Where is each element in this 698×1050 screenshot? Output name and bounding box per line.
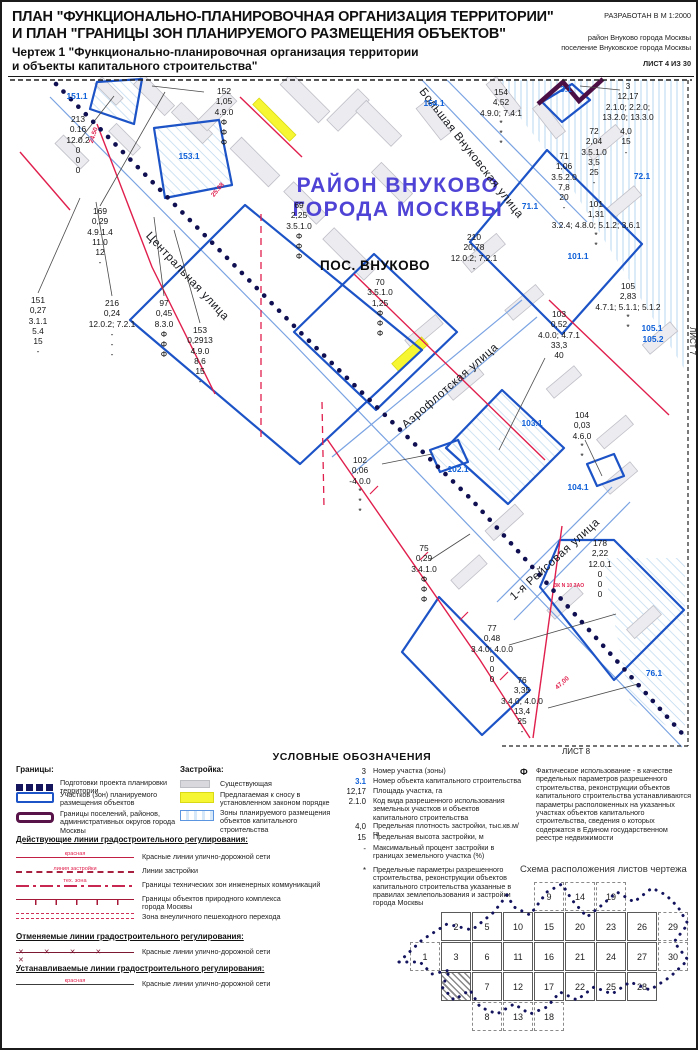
- param-text: Номер участка (зоны): [373, 767, 525, 776]
- legend-item-label: Границы технических зон инженерных комму…: [142, 881, 332, 889]
- fact-use-symbol: Ф: [520, 767, 532, 843]
- parcel-annotation: 151 0,27 3.1.1 5.4 15 -: [29, 295, 48, 357]
- legend-title: УСЛОВНЫЕ ОБОЗНАЧЕНИЯ: [202, 751, 502, 763]
- parcel-annotation: 169 0,29 4.9.1.4 11.0 12 -: [87, 206, 113, 268]
- scheme-sheet-cell: 3: [441, 942, 471, 971]
- fact-use-note: Ф Фактическое использование - в качестве…: [520, 767, 692, 843]
- scheme-sheet-cell: 25: [596, 972, 626, 1001]
- param-text: Номер объекта капитального строительства: [373, 777, 525, 786]
- param-symbol: 2.1.0: [340, 797, 366, 822]
- scheme-sheet-cell: 10: [503, 912, 533, 941]
- scheme-current-sheet-cell: [441, 972, 471, 1001]
- zone-label: 76.1: [646, 668, 662, 678]
- zone-label: 153.1: [179, 151, 200, 161]
- legend-item-label: Существующая: [220, 780, 330, 788]
- param-symbol: 3.1: [340, 777, 366, 786]
- param-row: 3Номер участка (зоны): [340, 767, 525, 776]
- legend-item-label: Границы объектов природного комплекса го…: [142, 895, 292, 912]
- parcel-annotation: 104 0,03 4.6.0 * *: [573, 410, 592, 461]
- param-row: *Предельные параметры разрешенного строи…: [340, 866, 525, 907]
- blue-hatch-swatch: [180, 810, 214, 821]
- parcel-annotation: 153 0,2913 4.9.0 8,6 15 -: [187, 325, 213, 387]
- parcel-annotation: 102 0,06 -4.0.0 * * *: [349, 455, 370, 517]
- parcel-annotation: 75 0,29 3.4.1.0 Ф Ф Ф: [411, 543, 437, 605]
- legend-item-label: Зоны планируемого размещения объектов ка…: [220, 809, 332, 834]
- parcel-annotation: 72 2,04 3.5.1.0 3,5 25 -: [581, 126, 607, 188]
- parcel-annotation: 70 3.5.1.0 1,25 Ф Ф Ф: [367, 277, 393, 339]
- scheme-sheet-cell: 2: [441, 912, 471, 941]
- parcel-annotation: 152 1,05 4.9.0 Ф Ф Ф: [215, 86, 234, 148]
- scheme-sheet-cell: 7: [472, 972, 502, 1001]
- scheme-sheet-cell: 5: [472, 912, 502, 941]
- edge-label-sheet7: ЛИСТ 7: [688, 327, 697, 355]
- scheme-sheet-cell: 12: [503, 972, 533, 1001]
- parcel-annotation: 69 2,25 3.5.1.0 Ф Ф Ф: [286, 200, 312, 262]
- purple-rect-swatch: [16, 812, 54, 823]
- zone-label: 3.1: [560, 84, 572, 94]
- scheme-sheet-cell: 8: [472, 1002, 502, 1031]
- param-row: 2.1.0Код вида разрешенного использования…: [340, 797, 525, 822]
- scheme-sheet-cell: 21: [565, 942, 595, 971]
- parcel-annotation: 105 2,83 4.7.1; 5.1.1; 5.1.2 * *: [595, 281, 660, 332]
- scheme-sheet-cell: 26: [627, 912, 657, 941]
- parcel-annotation: 210 20,78 12.0.2; 7.2.1 -: [451, 232, 498, 273]
- param-text: Код вида разрешенного использования земе…: [373, 797, 525, 822]
- zone-label: 103.1: [522, 418, 543, 428]
- zone-label: 71.1: [522, 201, 538, 211]
- zone-label: 72.1: [634, 171, 650, 181]
- parcel-annotation: 3 12,17 2.1.0; 2.2.0; 13.2.0; 13.3.0: [602, 81, 653, 122]
- param-symbol: -: [340, 844, 366, 861]
- sheet-number-note: ЛИСТ 4 ИЗ 30: [643, 59, 691, 68]
- scheme-sheet-cell: 9: [534, 882, 564, 911]
- param-text: Максимальный процент застройки в граница…: [373, 844, 525, 861]
- scheme-sheet-cell: 28: [627, 972, 657, 1001]
- param-symbol: 15: [340, 833, 366, 842]
- scheme-sheet-cell: 6: [472, 942, 502, 971]
- legend-item-label: Красные линии улично-дорожной сети: [142, 853, 332, 861]
- scale-note: РАЗРАБОТАН В М 1:2000: [604, 11, 691, 20]
- swatch-tag: тех. зона: [63, 878, 86, 884]
- legend-item-label: Зона внеуличного пешеходного перехода: [142, 913, 332, 921]
- plan-title-line2: И ПЛАН "ГРАНИЦЫ ЗОН ПЛАНИРУЕМОГО РАЗМЕЩЕ…: [12, 26, 506, 43]
- parcel-annotation: 76 3,35 3.4.0; 4.0.0 13,4 25 -: [501, 675, 543, 737]
- settlement-label: ПОС. ВНУКОВО: [320, 258, 430, 273]
- legend-item-label: Предлагаемая к сносу в установленном зак…: [220, 791, 332, 808]
- scheme-sheet-cell: 24: [596, 942, 626, 971]
- swatch-tag: линия застройки: [53, 866, 96, 872]
- swatch-tag: красная: [65, 978, 86, 984]
- fact-use-text: Фактическое использование - в качестве п…: [536, 767, 692, 843]
- scheme-sheet-cell: 20: [565, 912, 595, 941]
- legend-item-label: Красные линии улично-дорожной сети: [142, 980, 332, 988]
- scheme-sheet-cell: 23: [596, 912, 626, 941]
- scheme-sheet-cell: 27: [627, 942, 657, 971]
- scheme-sheet-cell: 22: [565, 972, 595, 1001]
- zone-label: 104.1: [568, 482, 589, 492]
- scheme-sheet-cell: 14: [565, 882, 595, 911]
- legend-item-label: Красные линии улично-дорожной сети: [142, 948, 332, 956]
- title-block: ПЛАН "ФУНКЦИОНАЛЬНО-ПЛАНИРОВОЧНАЯ ОРГАНИ…: [8, 5, 694, 77]
- zone-label: 154.1: [424, 98, 445, 108]
- drawing-sheet: ПЛАН "ФУНКЦИОНАЛЬНО-ПЛАНИРОВОЧНАЯ ОРГАНИ…: [0, 0, 698, 1050]
- zone-label: 101.1: [568, 251, 589, 261]
- param-text: Площадь участка, га: [373, 787, 525, 796]
- scheme-sheet-cell: 29: [658, 912, 688, 941]
- legend-borders-title: Границы:: [16, 765, 54, 774]
- thin-line-swatch: красная: [16, 984, 134, 985]
- param-symbol: 3: [340, 767, 366, 776]
- double-dashed-swatch: [16, 913, 134, 919]
- legend-item-label: Линии застройки: [142, 867, 332, 875]
- param-row: 15Предельная высота застройки, м: [340, 833, 525, 842]
- ticked-line-swatch: [16, 899, 134, 905]
- scheme-sheet-cell: 16: [534, 942, 564, 971]
- dashdot-line-swatch: тех. зона: [16, 885, 134, 887]
- dashed-line-swatch: линия застройки: [16, 871, 134, 873]
- parcel-annotation: 101 1,31 3.2.4; 4.8.0; 5.1.2; 3.6.1 * *: [552, 199, 640, 250]
- gray-fill-swatch: [180, 780, 210, 788]
- zone-label: 151.1: [67, 91, 88, 101]
- sheet-scheme-title: Схема расположения листов чертежа: [520, 864, 687, 875]
- legend-established-title: Устанавливаемые линии градостроительного…: [16, 964, 264, 973]
- parcel-annotation: 213 0.16 12.0.2 0 0 0: [66, 114, 89, 176]
- param-row: 3.1Номер объекта капитального строительс…: [340, 777, 525, 786]
- parcel-annotation: 103 0,52 4.0.0; 4.7.1 33,3 40: [538, 309, 580, 360]
- parcel-annotation: 178 2,22 12.0.1 0 0 0: [588, 538, 611, 600]
- zone-label: 102.1: [448, 464, 469, 474]
- param-row: 12,17Площадь участка, га: [340, 787, 525, 796]
- legend-item-label: Границы поселений, районов, администрати…: [60, 810, 178, 835]
- plan-title-line1: ПЛАН "ФУНКЦИОНАЛЬНО-ПЛАНИРОВОЧНАЯ ОРГАНИ…: [12, 9, 554, 26]
- x-marked-line-swatch: [16, 952, 134, 953]
- legend-buildings-title: Застройка:: [180, 765, 224, 774]
- swatch-tag: красная: [65, 851, 86, 857]
- scheme-sheet-cell: 17: [534, 972, 564, 1001]
- yellow-fill-swatch: [180, 792, 214, 803]
- blue-rect-swatch: [16, 792, 54, 803]
- red-line-swatch: красная: [16, 857, 134, 858]
- drawing-subtitle-line2: и объекты капитального строительства": [12, 59, 257, 73]
- param-symbol: 12,17: [340, 787, 366, 796]
- legend-item-label: Участков (зон) планируемого размещения о…: [60, 791, 172, 808]
- district-note2: поселение Внуковское города Москвы: [561, 43, 691, 52]
- param-text: Предельная высота застройки, м: [373, 833, 525, 842]
- parcel-annotation: 97 0,45 8.3.0 Ф Ф Ф: [155, 298, 174, 360]
- drawing-subtitle-line1: Чертеж 1 "Функционально-планировочная ор…: [12, 45, 419, 59]
- legend-cancelled-title: Отменяемые линии градостроительного регу…: [16, 932, 244, 941]
- legend-active-title: Действующие линии градостроительного рег…: [16, 835, 248, 844]
- scheme-sheet-cell: 30: [658, 942, 688, 971]
- scheme-sheet-cell: 11: [503, 942, 533, 971]
- scheme-sheet-cell: 18: [534, 1002, 564, 1031]
- zone-label: 105.2: [643, 334, 664, 344]
- param-text: Предельные параметры разрешенного строит…: [373, 866, 525, 907]
- param-row: -Максимальный процент застройки в границ…: [340, 844, 525, 861]
- scheme-sheet-cell: 15: [534, 912, 564, 941]
- edge-label-sheet8: ЛИСТ 8: [562, 747, 590, 756]
- cadastral-note: ЗК N 10 ЗАО: [554, 583, 584, 589]
- scheme-sheet-cell: 19: [596, 882, 626, 911]
- scheme-sheet-cell: 1: [410, 942, 440, 971]
- parcel-annotation: 4,0 15 -: [620, 126, 632, 157]
- scheme-sheet-cell: 13: [503, 1002, 533, 1031]
- param-symbol: *: [340, 866, 366, 907]
- district-note1: район Внуково города Москвы: [588, 33, 691, 42]
- parcel-annotation: 216 0,24 12.0.2; 7.2.1 - - -: [89, 298, 136, 360]
- parcel-annotation: 154 4,52 4.9.0; 7.4.1 * * *: [480, 87, 522, 149]
